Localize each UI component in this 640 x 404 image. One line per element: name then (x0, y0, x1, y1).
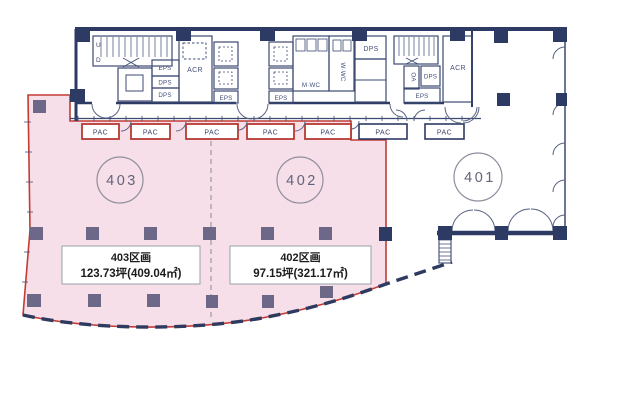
acr-label-east: ACR (450, 65, 466, 72)
pac-units-row: PAC PAC PAC PAC PAC PAC PAC (82, 124, 464, 139)
dps-label-3: DPS (363, 46, 378, 53)
womens-wc-label: W·WC (339, 62, 346, 81)
pac-label-4: PAC (263, 130, 278, 137)
core-rooms: U D EPS DPS DPS ACR EPS (93, 36, 472, 103)
pac-unit-6: PAC (359, 124, 407, 139)
elevator-hall-doors (237, 104, 268, 119)
east-wall-doors (553, 47, 565, 227)
staircase-west: U D (93, 36, 172, 67)
parcel-info-402: 402区画 97.15坪(321.17㎡) (230, 246, 371, 284)
hatched-pillar (439, 236, 451, 263)
womens-wc-room: W·WC (329, 36, 354, 91)
eps-label-1: EPS (159, 65, 172, 72)
parcel-403-title: 403区画 (111, 251, 151, 264)
parcel-info-403: 403区画 123.73坪(409.04㎡) (62, 246, 200, 284)
pac-unit-3: PAC (186, 124, 238, 139)
unit402-number: 402 (286, 173, 318, 189)
pac-label-5: PAC (320, 130, 335, 137)
floor-plan-canvas: U D EPS DPS DPS ACR EPS (0, 0, 640, 404)
machine-room (118, 68, 152, 101)
pac-unit-5: PAC (305, 124, 351, 139)
pac-label-2: PAC (143, 130, 158, 137)
mens-wc-room: M·WC (293, 36, 329, 91)
acr-equipment-box (183, 43, 206, 59)
floor-plan-drawing: U D EPS DPS DPS ACR EPS (0, 0, 640, 404)
pac-label-7: PAC (437, 130, 452, 137)
eps-label-4: EPS (416, 93, 429, 100)
pac-label-3: PAC (204, 130, 219, 137)
dps-label-4: DPS (424, 74, 437, 81)
pac-unit-2: PAC (131, 124, 170, 139)
leased-entrance-doors (92, 104, 120, 118)
mens-wc-label: M·WC (302, 82, 321, 89)
eps-label-2: EPS (220, 95, 233, 102)
elevator-bank-2: EPS (269, 42, 293, 103)
dps-label-1: DPS (158, 80, 171, 87)
unit401-number: 401 (464, 170, 496, 186)
pac-unit-1: PAC (82, 124, 119, 139)
utility-room (355, 59, 386, 102)
staircase-east (394, 36, 438, 64)
pac-label-6: PAC (375, 130, 390, 137)
oa-label: OA (410, 72, 417, 82)
core-west-corner-pillar (70, 89, 85, 102)
parcel-402-title: 402区画 (280, 251, 320, 264)
parcel-403-area: 123.73坪(409.04㎡) (80, 266, 181, 280)
pac-unit-7: PAC (425, 124, 464, 139)
dps-label-2: DPS (158, 92, 171, 99)
parcel-402-area: 97.15坪(321.17㎡) (253, 266, 348, 280)
elevator-bank-1: EPS (214, 42, 238, 103)
pac-unit-4: PAC (247, 124, 294, 139)
stair-down-label: D (96, 57, 101, 64)
eps-label-3: EPS (275, 95, 288, 102)
pac-label-1: PAC (93, 130, 108, 137)
acr-label-west: ACR (187, 67, 203, 74)
unit403-number: 403 (106, 173, 138, 189)
stair-up-label: U (96, 42, 101, 49)
